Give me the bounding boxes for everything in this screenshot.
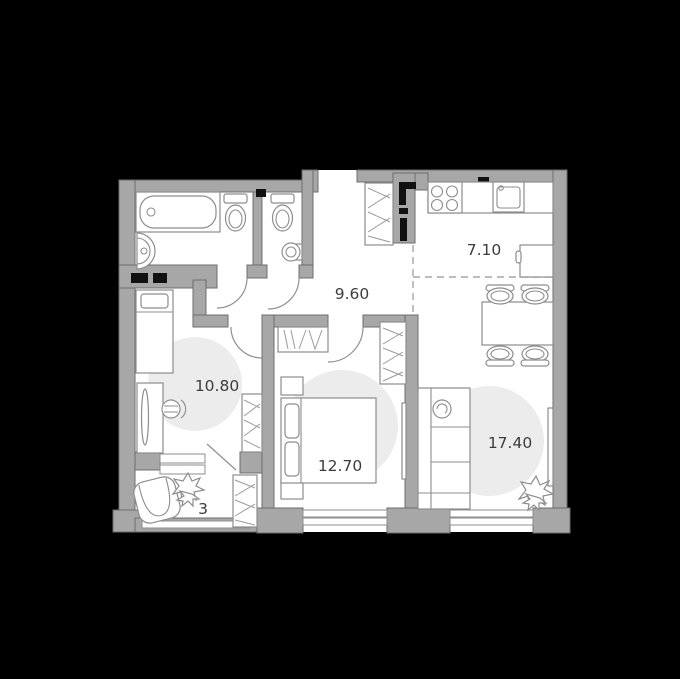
wall bbox=[262, 315, 274, 532]
room-label-balcony: 3 bbox=[198, 500, 208, 518]
window-icon bbox=[160, 465, 205, 474]
bathtub-icon bbox=[140, 196, 216, 228]
wardrobe-icon bbox=[365, 183, 393, 245]
wall bbox=[135, 452, 160, 470]
toilet-icon bbox=[224, 194, 247, 231]
kitchen-sink-icon bbox=[493, 182, 524, 212]
wall bbox=[357, 170, 567, 182]
nightstand-icon bbox=[281, 377, 303, 395]
window-icon bbox=[450, 518, 533, 525]
wall bbox=[405, 315, 418, 510]
wall bbox=[553, 170, 567, 533]
wardrobe-icon bbox=[278, 327, 328, 352]
vent-duct-mark bbox=[400, 218, 407, 241]
stove-icon bbox=[428, 182, 462, 213]
stool-icon bbox=[486, 346, 514, 366]
wall bbox=[119, 180, 135, 532]
entrance-door-icon bbox=[319, 133, 355, 170]
room-label-living: 17.40 bbox=[488, 434, 532, 452]
wall bbox=[253, 192, 262, 265]
wall bbox=[240, 452, 262, 473]
stool-icon bbox=[486, 285, 514, 304]
wall bbox=[387, 508, 450, 533]
wall bbox=[533, 508, 570, 533]
wall bbox=[119, 180, 318, 192]
room-label-kitchen: 7.10 bbox=[467, 241, 502, 259]
room-label-bedroom-small: 10.80 bbox=[195, 377, 239, 395]
stool-icon bbox=[521, 285, 549, 304]
toilet-icon bbox=[271, 194, 294, 231]
wardrobe-icon bbox=[380, 322, 406, 384]
wall bbox=[257, 508, 303, 533]
wardrobe-icon bbox=[242, 394, 262, 452]
fridge-icon bbox=[516, 245, 553, 277]
corner-sink-icon bbox=[282, 243, 302, 261]
wall bbox=[302, 170, 313, 278]
utility-mark bbox=[256, 189, 266, 197]
window-icon bbox=[160, 454, 205, 463]
vent-duct-mark bbox=[399, 182, 416, 189]
radiator-icon bbox=[402, 403, 406, 479]
wardrobe-icon bbox=[233, 475, 257, 527]
radiator-icon bbox=[548, 408, 553, 486]
single-bed-icon bbox=[136, 290, 173, 373]
window-icon bbox=[450, 510, 533, 517]
sofa-icon bbox=[418, 388, 470, 509]
room-label-bedroom-master: 12.70 bbox=[318, 457, 362, 475]
floor-plan-canvas: 9.60 7.10 10.80 12.70 17.40 3 bbox=[0, 0, 680, 679]
utility-mark bbox=[131, 273, 148, 283]
wall bbox=[193, 315, 228, 327]
wall bbox=[415, 173, 428, 190]
desk-icon bbox=[137, 383, 163, 453]
room-label-hallway: 9.60 bbox=[335, 285, 370, 303]
window-icon bbox=[303, 510, 387, 517]
dining-table-icon bbox=[482, 302, 553, 345]
stool-icon bbox=[521, 346, 549, 366]
wall bbox=[274, 315, 328, 327]
floor-plan: 9.60 7.10 10.80 12.70 17.40 3 bbox=[0, 0, 680, 679]
wall bbox=[247, 265, 267, 278]
wall bbox=[299, 265, 313, 278]
vent-duct-mark bbox=[399, 208, 408, 214]
utility-mark bbox=[153, 273, 167, 283]
window-icon bbox=[303, 518, 387, 525]
